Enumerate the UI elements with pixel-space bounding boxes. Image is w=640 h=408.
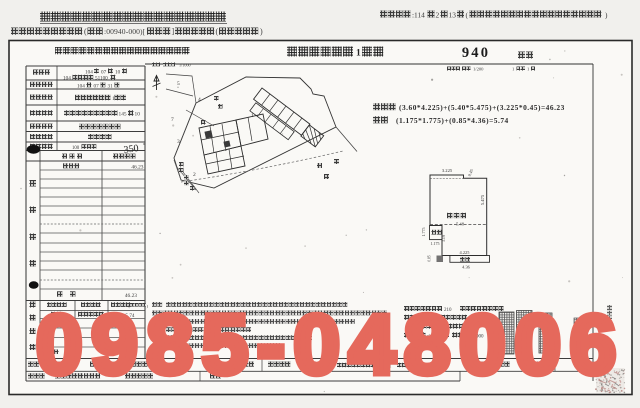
svg-text:51100: 51100 xyxy=(95,76,108,82)
svg-text:]: ] xyxy=(172,27,175,36)
svg-text:0.85: 0.85 xyxy=(428,255,432,261)
svg-text:940: 940 xyxy=(462,45,490,61)
svg-text:1: 1 xyxy=(251,113,254,119)
svg-text:2: 2 xyxy=(193,172,196,178)
svg-text:4.225: 4.225 xyxy=(460,250,471,255)
svg-text:2: 2 xyxy=(436,10,440,19)
svg-text:5.475: 5.475 xyxy=(480,194,485,205)
svg-text::00940-000)[: :00940-000)[ xyxy=(104,27,146,36)
svg-text:(: ( xyxy=(84,27,87,36)
svg-text:07: 07 xyxy=(101,69,107,75)
svg-text:13: 13 xyxy=(449,10,457,19)
svg-text:): ) xyxy=(260,27,263,36)
svg-text:10: 10 xyxy=(135,112,141,118)
svg-text:1/1000: 1/1000 xyxy=(179,63,191,68)
svg-text:(: ( xyxy=(216,27,219,36)
svg-text:7: 7 xyxy=(171,117,174,123)
svg-text:(1.175*1.775)+(0.85*4.36)=5.74: (1.175*1.775)+(0.85*4.36)=5.74 xyxy=(396,116,509,125)
svg-text:1.175: 1.175 xyxy=(431,241,440,246)
svg-text:3.19: 3.19 xyxy=(441,235,446,242)
svg-text:145: 145 xyxy=(119,112,127,118)
svg-text:1.775: 1.775 xyxy=(421,228,426,237)
svg-text:104: 104 xyxy=(85,69,93,75)
svg-text:(3.60*4.225)+(5.40*5.475)+(3.2: (3.60*4.225)+(5.40*5.475)+(3.225*0.45)=4… xyxy=(399,103,565,112)
svg-text:1: 1 xyxy=(356,49,361,59)
svg-text:5.48: 5.48 xyxy=(456,221,465,226)
svg-text:4.36: 4.36 xyxy=(462,264,470,269)
svg-text:1/200: 1/200 xyxy=(473,67,484,72)
svg-text:31: 31 xyxy=(108,83,114,89)
svg-text:5: 5 xyxy=(177,81,180,87)
svg-text:3: 3 xyxy=(177,139,180,145)
svg-text:100: 100 xyxy=(72,146,80,151)
svg-text::114: :114 xyxy=(412,10,425,19)
svg-text:104: 104 xyxy=(77,83,85,89)
svg-text:46.23: 46.23 xyxy=(131,164,143,170)
svg-text:10: 10 xyxy=(115,69,121,75)
svg-text:07: 07 xyxy=(94,83,100,89)
svg-text:0985-048006: 0985-048006 xyxy=(36,297,625,391)
svg-text:104: 104 xyxy=(63,76,71,82)
svg-text:4: 4 xyxy=(198,97,201,103)
svg-text:3.225: 3.225 xyxy=(442,168,453,173)
